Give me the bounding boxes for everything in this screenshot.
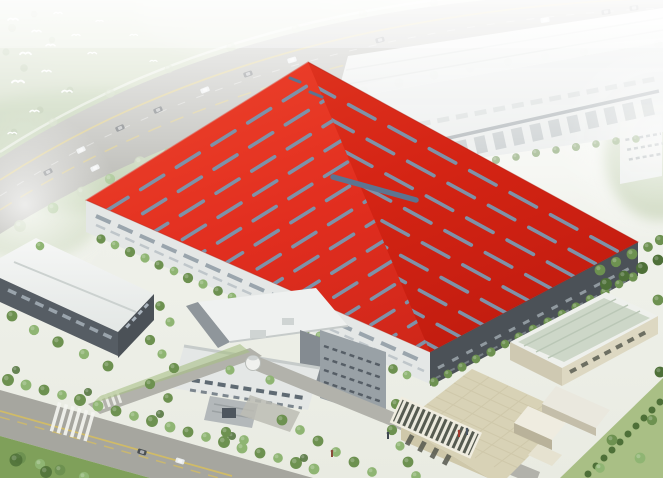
- gatehouse: [246, 356, 261, 371]
- aerial-rendering: [0, 0, 663, 478]
- rd-rooftop-unit-2: [282, 318, 294, 325]
- top-veil: [0, 0, 663, 48]
- rd-rooftop-unit-1: [250, 330, 266, 338]
- screenshot-root: [0, 0, 663, 478]
- rd-entrance-door: [222, 408, 236, 418]
